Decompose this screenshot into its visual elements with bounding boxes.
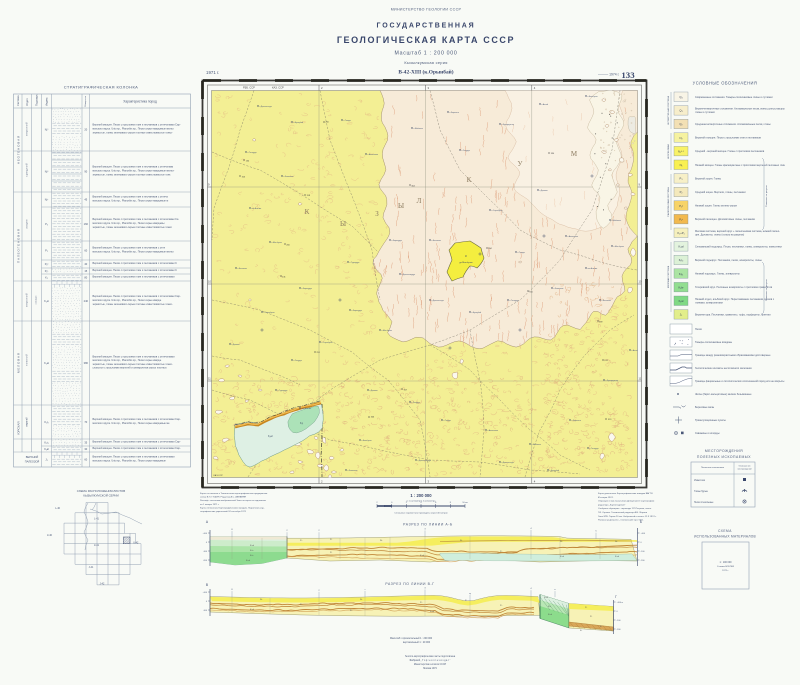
svg-text:Зона 8/95. Тираж 20 экз. Набра: Зона 8/95. Тираж 20 экз. Набранный в печ… <box>598 515 657 518</box>
svg-text:к.Таскудук: к.Таскудук <box>590 448 599 450</box>
svg-text:К: К <box>467 176 472 184</box>
svg-text:Характеристика пород: Характеристика пород <box>123 100 157 104</box>
svg-text:вертикальный 1 : 20 000: вертикальный 1 : 20 000 <box>403 641 431 644</box>
svg-text:K₁al: K₁al <box>679 299 684 303</box>
svg-text:K₁al: K₁al <box>44 447 49 451</box>
svg-text:кол.Агитма: кол.Агитма <box>588 267 599 270</box>
svg-text:K₂al: K₂al <box>544 597 549 599</box>
svg-text:Q₄: Q₄ <box>679 95 682 99</box>
svg-text:матского яруса. Unio sp., Plan: матского яруса. Unio sp., Planorbis sp.,… <box>93 299 162 302</box>
svg-text:М: М <box>571 150 578 158</box>
svg-text:щ: щ <box>469 593 471 595</box>
svg-text:Верхний миоцен. Пески с просло: Верхний миоцен. Пески с прослоями глин и… <box>93 269 178 272</box>
svg-text:к.Джангельды: к.Джангельды <box>432 300 445 302</box>
svg-text:Фабрикой „ Г о р г е о л т е: Фабрикой „ Г о р г е о л т е х и з д а т… <box>410 659 451 662</box>
svg-text:P₁²: P₁² <box>679 204 683 208</box>
svg-text:Средний эоцен. Мергели, глины,: Средний эоцен. Мергели, глины, песчаники <box>695 191 746 194</box>
svg-text:K₂: K₂ <box>600 626 602 628</box>
svg-text:цен. Доломиты, глины (только н: цен. Доломиты, глины (только на разрезе) <box>695 233 744 236</box>
svg-text:к.Турткудук: к.Турткудук <box>278 390 288 392</box>
svg-text:Такыры-солончаковые впадины: Такыры-солончаковые впадины <box>695 341 732 344</box>
svg-text:——— 1974 г.: ——— 1974 г. <box>598 73 620 77</box>
svg-text:P₂: P₂ <box>680 190 683 194</box>
svg-text:к.Балыклы: к.Балыклы <box>602 300 612 302</box>
svg-text:верхний: верхний <box>26 417 29 427</box>
svg-text:к.Учкудук: к.Учкудук <box>462 150 470 152</box>
svg-text:J₃: J₃ <box>680 313 682 317</box>
svg-text:Верхний миоцен. Пески с просло: Верхний миоцен. Пески с прослоями глин и… <box>93 276 176 279</box>
svg-text:K₂+P₁: K₂+P₁ <box>677 231 684 235</box>
svg-text:на 1 января 1971 г.: на 1 января 1971 г. <box>200 504 220 506</box>
svg-text:N₁²⁻³: N₁²⁻³ <box>678 149 684 153</box>
svg-text:Геологические контакты несогла: Геологические контакты несогласного зале… <box>695 367 752 370</box>
svg-text:K₂: K₂ <box>350 610 352 612</box>
svg-text:зернистые, глины зеленовато-се: зернистые, глины зеленовато-серые плотны… <box>93 131 173 134</box>
svg-text:К: К <box>305 208 310 216</box>
svg-text:матского яруса. Unio sp., Plan: матского яруса. Unio sp., Planorbis sp.,… <box>93 359 162 362</box>
svg-text:Карта допечатана Картографичес: Карта допечатана Картографическим заводо… <box>598 492 653 495</box>
svg-text:Жилы (барит-кальцитовые) мелки: Жилы (барит-кальцитовые) мелкие безымянн… <box>695 393 752 396</box>
svg-text:P₁: P₁ <box>330 539 332 541</box>
svg-text:Юстиции 1974.: Юстиции 1974. <box>598 497 614 499</box>
svg-text:К-40: К-40 <box>47 534 53 537</box>
svg-text:к.Джангельды: к.Джангельды <box>260 106 273 108</box>
svg-text:N₁: N₁ <box>380 540 383 542</box>
svg-text:Верхний миоцен. Пески с просло: Верхний миоцен. Пески с прослоями глин и… <box>93 355 176 358</box>
svg-text:сеноман: сеноман <box>36 295 38 304</box>
svg-text:Готеривский ярус. Песчаные але: Готеривский ярус. Песчаные алевролиты с … <box>695 286 773 289</box>
svg-text:L-40: L-40 <box>55 507 60 510</box>
svg-text:Ы: Ы <box>398 202 404 210</box>
svg-text:КАЗ.ССР: КАЗ.ССР <box>214 474 224 477</box>
svg-text:ПАЛЕОГЕНОВАЯ СИСТЕМА: ПАЛЕОГЕНОВАЯ СИСТЕМА <box>667 187 670 217</box>
svg-text:к.Учкудук: к.Учкудук <box>294 360 302 362</box>
svg-text:к.Тамды: к.Тамды <box>344 120 352 122</box>
svg-text:P₁¹: P₁¹ <box>45 269 49 273</box>
svg-text:кол.Агитма: кол.Агитма <box>252 207 263 210</box>
svg-text:240: 240 <box>84 299 89 303</box>
svg-text:зернистые, глины зеленовато-се: зернистые, глины зеленовато-серые плотны… <box>93 363 173 366</box>
svg-text:K₂al: K₂al <box>430 611 435 613</box>
svg-text:месторождений: месторождений <box>738 468 752 471</box>
svg-text:ур.Мынбулак: ур.Мынбулак <box>459 262 472 264</box>
svg-text:РЗБ. ССР: РЗБ. ССР <box>243 86 255 90</box>
svg-text:N₁²: N₁² <box>45 170 49 174</box>
svg-text:к.Шейхали: к.Шейхали <box>612 219 621 222</box>
svg-text:к.Тамды: к.Тамды <box>444 420 452 422</box>
svg-text:к.Таскудук: к.Таскудук <box>248 152 257 154</box>
svg-text:N₂: N₂ <box>680 136 683 140</box>
svg-text:Г: Г <box>615 595 617 599</box>
svg-text:к.Караката: к.Караката <box>450 112 460 114</box>
svg-text:НЕОГЕНОВАЯ: НЕОГЕНОВАЯ <box>667 144 670 160</box>
svg-text:K₁t₁: K₁t₁ <box>679 272 683 276</box>
svg-text:к.Аксай: к.Аксай <box>542 103 549 106</box>
svg-text:к.Бешбулак: к.Бешбулак <box>362 440 372 442</box>
svg-text:J-41: J-41 <box>89 566 94 569</box>
svg-text:K₂al: K₂al <box>560 556 565 558</box>
svg-text:Нижний подъярус. Глины, алевро: Нижний подъярус. Глины, алевролиты <box>695 273 740 276</box>
svg-text:П А Л Е О Г Е Н О В А Я: П А Л Е О Г Е Н О В А Я <box>17 229 21 263</box>
svg-text:ПОЛЕЗНЫХ ИСКОПАЕМЫХ: ПОЛЕЗНЫХ ИСКОПАЕМЫХ <box>697 455 751 459</box>
svg-text:Верхний миоцен. Пески с просло: Верхний миоцен. Пески с прослоями глин и… <box>93 247 166 250</box>
svg-text:т: т <box>364 589 365 591</box>
svg-text:к.Джангызкудук: к.Джангызкудук <box>418 460 432 462</box>
svg-text:K₁t: K₁t <box>300 422 303 425</box>
svg-text:ЮРСКАЯ: ЮРСКАЯ <box>17 421 21 434</box>
svg-text:P₁: P₁ <box>590 616 592 618</box>
svg-text:P₁: P₁ <box>330 552 332 554</box>
svg-text:Рабочая разрешено - технически: Рабочая разрешено - технический торг. 50… <box>598 519 644 522</box>
svg-text:P₂: P₂ <box>500 605 502 607</box>
svg-text:матского яруса. Unio sp., Plan: матского яруса. Unio sp., Planorbis sp.,… <box>93 422 171 425</box>
svg-text:K₁t₂: K₁t₂ <box>250 549 254 552</box>
svg-text:N₁³: N₁³ <box>45 128 49 132</box>
svg-text:Скважины и колодцы: Скважины и колодцы <box>695 432 720 435</box>
svg-text:Рельеф с высотами изображенный: Рельеф с высотами изображенный Зоны на к… <box>200 499 267 502</box>
svg-text:Ы: Ы <box>340 220 346 228</box>
svg-text:к.Джангызкудук: к.Джангызкудук <box>402 274 416 276</box>
svg-text:Карта составлена в Ташкентском: Карта составлена в Ташкентском картограф… <box>200 492 268 495</box>
svg-text:к.Шейхали: к.Шейхали <box>414 127 423 130</box>
svg-text:L-41: L-41 <box>94 518 99 521</box>
svg-text:МИНИСТЕРСТВО ГЕОЛОГИИ СССР: МИНИСТЕРСТВО ГЕОЛОГИИ СССР <box>391 8 462 12</box>
svg-text:к.Кызылкак: к.Кызылкак <box>348 470 358 472</box>
svg-text:K₁br: K₁br <box>678 285 683 289</box>
svg-text:Береговые валы: Береговые валы <box>695 406 714 409</box>
svg-text:глинами, алевролитами: глинами, алевролитами <box>695 301 723 304</box>
svg-text:N₁: N₁ <box>360 599 363 601</box>
svg-text:Полезные ископаемые: Полезные ископаемые <box>701 467 725 469</box>
svg-text:P₃: P₃ <box>45 222 48 226</box>
svg-text:Геолого-картографическая часть: Геолого-картографическая часть подготовл… <box>405 655 456 658</box>
svg-text:Верхний миоцен. Пески с просло: Верхний миоцен. Пески с прослоями глин и… <box>93 166 174 169</box>
svg-text:Верхний плиоцен. Пески с просл: Верхний плиоцен. Пески с прослоями глин … <box>695 137 762 140</box>
svg-text:к.Кульджуктау: к.Кульджуктау <box>606 380 619 382</box>
svg-text:K₂al: K₂al <box>250 545 255 547</box>
svg-text:МЕСТОРОЖДЕНИЯ: МЕСТОРОЖДЕНИЯ <box>705 449 743 453</box>
svg-text:K₂al: K₂al <box>250 609 255 611</box>
svg-text:Верхний миоцен. Пески с просло: Верхний миоцен. Пески с прослоями глин и… <box>93 218 180 221</box>
svg-text:K₁al: K₁al <box>548 614 552 616</box>
svg-text:Верхний подъярус. Песчаники, п: Верхний подъярус. Песчаники, пески, алев… <box>695 259 762 262</box>
svg-text:Верхний эоцен. Глины: Верхний эоцен. Глины <box>695 177 721 180</box>
svg-text:У: У <box>518 160 523 168</box>
svg-text:K₁t₂: K₁t₂ <box>44 420 48 424</box>
svg-text:к.Каракудук: к.Каракудук <box>302 288 312 290</box>
svg-text:+100 м: +100 м <box>617 602 624 604</box>
svg-text:слоистые с прослоями мергелей: слоистые с прослоями мергелей и алевроли… <box>93 367 168 370</box>
svg-text:к.Бузаубай: к.Бузаубай <box>550 469 560 472</box>
svg-text:K₂: K₂ <box>45 276 48 280</box>
svg-text:КАЗ. ССР: КАЗ. ССР <box>272 86 284 90</box>
svg-text:матского яруса. Unio sp., Plan: матского яруса. Unio sp., Planorbis sp.,… <box>93 222 165 225</box>
svg-text:к.Караката: к.Караката <box>572 420 582 422</box>
svg-text:N₁: N₁ <box>260 599 263 601</box>
svg-text:к.Джангельды: к.Джангельды <box>502 462 515 464</box>
svg-text:к.Турткудук: к.Турткудук <box>350 262 360 264</box>
svg-text:к.Мынбулак: к.Мынбулак <box>382 330 392 332</box>
svg-text:P₂: P₂ <box>45 249 48 253</box>
svg-text:КЫЗЫЛКУМСКОЙ СЕРИИ: КЫЗЫЛКУМСКОЙ СЕРИИ <box>83 494 118 498</box>
svg-text:к.Мынбулак: к.Мынбулак <box>272 242 282 244</box>
svg-text:Границы между разновозрастными: Границы между разновозрастными образован… <box>695 354 771 357</box>
svg-text:Q₂: Q₂ <box>679 122 682 126</box>
svg-text:Сплошные горизонтали проведены: Сплошные горизонтали проведены через 40 … <box>394 513 448 515</box>
svg-text:K₂al: K₂al <box>615 556 620 558</box>
svg-text:зернистые, глины зеленовато-се: зернистые, глины зеленовато-серые плотны… <box>93 226 173 229</box>
svg-text:с: с <box>465 254 467 258</box>
svg-text:Сеноманский подъярус. Пески, п: Сеноманский подъярус. Пески, песчаники, … <box>695 245 782 248</box>
svg-text:K₂al: K₂al <box>268 435 273 438</box>
svg-text:к.Аякагитма: к.Аякагитма <box>368 153 379 156</box>
svg-text:к.Сарыбулак: к.Сарыбулак <box>492 210 503 212</box>
svg-text:РАЗРЕЗ ПО ЛИНИИ В-Г: РАЗРЕЗ ПО ЛИНИИ В-Г <box>385 582 434 586</box>
svg-text:к.Каракудук: к.Каракудук <box>352 310 362 312</box>
svg-text:N₁¹: N₁¹ <box>45 198 49 202</box>
svg-text:к.Тамды: к.Тамды <box>518 252 526 254</box>
svg-text:P₁¹: P₁¹ <box>679 217 683 221</box>
svg-text:к.Аякагитма: к.Аякагитма <box>568 235 579 238</box>
svg-text:Показаны на разрезе: Показаны на разрезе <box>766 184 768 206</box>
svg-text:Подъярус: Подъярус <box>35 94 39 106</box>
svg-text:ГЕОЛОГИЧЕСКАЯ КАРТА СССР: ГЕОЛОГИЧЕСКАЯ КАРТА СССР <box>337 35 515 45</box>
svg-text:K₁t₁: K₁t₁ <box>250 554 254 557</box>
svg-text:Отдел: Отдел <box>25 98 29 106</box>
svg-text:ЧЕТВЕРТИЧНАЯ СИСТЕМА: ЧЕТВЕРТИЧНАЯ СИСТЕМА <box>667 96 670 125</box>
svg-text:к.Сарыбулак: к.Сарыбулак <box>322 342 333 344</box>
svg-text:глины и суглинки: глины и суглинки <box>695 111 715 114</box>
svg-text:Средний - верхний миоцен. Глин: Средний - верхний миоцен. Глины с просло… <box>695 150 765 153</box>
svg-text:Мощность: Мощность <box>85 95 87 106</box>
svg-text:в е р х н и й: в е р х н и й <box>26 122 29 136</box>
svg-text:к.Кызылкак: к.Кызылкак <box>554 288 564 290</box>
svg-text:к.Балыклы: к.Балыклы <box>432 240 442 242</box>
svg-text:Отобрано образцово - переходы: Отобрано образцово - переходы У.П.Петров… <box>598 508 652 510</box>
svg-text:Индекс: Индекс <box>45 97 49 106</box>
svg-text:Г.И. Орлова. Технический редак: Г.И. Орлова. Технический редактор А.В. Ж… <box>598 511 648 514</box>
svg-text:ИСПОЛЬЗОВАННЫХ МАТЕРИАЛОВ: ИСПОЛЬЗОВАННЫХ МАТЕРИАЛОВ <box>694 535 756 539</box>
svg-text:к.Джаман: к.Джаман <box>232 344 240 346</box>
svg-text:матского яруса. Unio sp., Plan: матского яруса. Unio sp., Planorbis sp.,… <box>93 128 175 131</box>
svg-text:Показаны на разрезе: Показаны на разрезе <box>766 278 768 300</box>
svg-text:СТРАТИГРАФИЧЕСКАЯ КОЛОНКА: СТРАТИГРАФИЧЕСКАЯ КОЛОНКА <box>64 85 139 90</box>
svg-text:Верхний миоцен. Пески с просло: Верхний миоцен. Пески с прослоями глин и… <box>93 456 176 459</box>
svg-text:Карта отпечатана Картографичес: Карта отпечатана Картографическим заводо… <box>200 506 265 509</box>
svg-text:N₁: N₁ <box>680 163 683 167</box>
svg-text:З: З <box>375 210 379 218</box>
svg-text:к.Бешбулак: к.Бешбулак <box>588 96 598 98</box>
svg-text:Б: Б <box>640 520 642 524</box>
svg-text:Обозначения: Обозначения <box>739 466 751 468</box>
svg-text:1971 г.: 1971 г. <box>722 570 729 572</box>
svg-text:K₂al: K₂al <box>44 361 49 365</box>
svg-text:матского яруса. Unio sp., Plan: матского яруса. Unio sp., Planorbis sp.,… <box>93 170 175 173</box>
svg-text:1 : 200 000: 1 : 200 000 <box>410 493 432 498</box>
svg-text:10 км: 10 км <box>462 502 468 504</box>
svg-text:с р е д н и й: с р е д н и й <box>26 163 29 177</box>
svg-text:Q₃: Q₃ <box>679 109 682 113</box>
svg-text:133: 133 <box>621 70 635 80</box>
svg-text:Л: Л <box>417 197 422 205</box>
svg-text:J-42: J-42 <box>100 583 105 586</box>
svg-text:кол.Агитма: кол.Агитма <box>302 407 313 410</box>
svg-text:N₁: N₁ <box>460 540 463 542</box>
svg-text:Верхний миоцен. Пески с просло: Верхний миоцен. Пески с прослоями глин и… <box>93 124 181 127</box>
svg-text:Пески стекольные: Пески стекольные <box>694 502 714 504</box>
svg-text:N₂: N₂ <box>560 541 563 543</box>
svg-text:зернистые, глины зеленовато-се: зернистые, глины зеленовато-серые плотны… <box>93 173 172 176</box>
svg-text:Нижний миоцен. Глины красноцве: Нижний миоцен. Глины красноцветные с про… <box>695 164 786 167</box>
svg-text:схема В.П. ГУШИН. Редактор: схема В.П. ГУШИН. Редактор А.С. АБРАМЯН <box>200 496 246 499</box>
svg-text:P₁: P₁ <box>465 600 467 602</box>
svg-text:160: 160 <box>84 222 89 226</box>
svg-text:В: В <box>206 583 208 587</box>
svg-text:P₂: P₂ <box>420 602 422 604</box>
svg-text:К-42: К-42 <box>134 542 140 545</box>
svg-text:K₂al: K₂al <box>679 245 684 249</box>
svg-text:K₂al: K₂al <box>420 555 425 557</box>
svg-text:МЕЛОВАЯ СИСТЕМА: МЕЛОВАЯ СИСТЕМА <box>667 265 670 288</box>
svg-text:Министерства геологии СССР: Министерства геологии СССР <box>414 664 447 666</box>
svg-text:K₁al: K₁al <box>246 560 250 562</box>
svg-text:к.Каракудук: к.Каракудук <box>392 240 402 242</box>
svg-text:к.Аякагитма: к.Аякагитма <box>488 429 499 432</box>
svg-text:ПАЛЕОЗОЙ: ПАЛЕОЗОЙ <box>25 460 40 464</box>
svg-text:Верхний миоцен. Пески с просло: Верхний миоцен. Пески с прослоями глин и… <box>93 447 181 450</box>
svg-text:тографических укреплений 24 с: тографических укреплений 24 сентября 197… <box>200 510 247 513</box>
svg-text:УСЛОВНЫЕ ОБОЗНАЧЕНИЯ: УСЛОВНЫЕ ОБОЗНАЧЕНИЯ <box>693 81 758 86</box>
svg-text:Триангуляционные пункты: Триангуляционные пункты <box>695 419 726 422</box>
svg-text:к.Учкудук: к.Учкудук <box>412 402 420 404</box>
svg-text:1971 г.: 1971 г. <box>206 70 219 75</box>
svg-text:1 : 100 000: 1 : 100 000 <box>720 561 733 564</box>
svg-text:Границы фациальные и литологич: Границы фациальные и литологических соот… <box>695 380 785 383</box>
svg-text:Верхний миоцен. Пески с просло: Верхний миоцен. Пески с прослоями глин и… <box>93 295 181 298</box>
svg-text:K₂st: K₂st <box>44 299 49 303</box>
svg-text:н и ж н и й: н и ж н и й <box>26 354 29 366</box>
svg-text:к.Кульджуктау: к.Кульджуктау <box>502 124 515 126</box>
svg-text:К-41: К-41 <box>94 544 100 547</box>
svg-text:матского яруса. Unio sp., Plan: матского яруса. Unio sp., Planorbis sp.,… <box>93 459 167 462</box>
svg-text:Кызылкумская серия: Кызылкумская серия <box>404 60 447 65</box>
svg-text:э о ц е н: э о ц е н <box>26 219 29 229</box>
svg-text:Известняк: Известняк <box>694 480 706 482</box>
svg-text:к.Аксай: к.Аксай <box>632 349 639 352</box>
svg-text:к.Балыклы: к.Балыклы <box>238 268 248 270</box>
svg-text:РАЗРЕЗ ПО ЛИНИИ А-Б: РАЗРЕЗ ПО ЛИНИИ А-Б <box>403 523 453 527</box>
svg-text:Москва 1974: Москва 1974 <box>423 668 437 670</box>
svg-text:ГОСУДАРСТВЕННАЯ: ГОСУДАРСТВЕННАЯ <box>377 23 476 30</box>
svg-text:Верхняя юра. Песчаники, гравел: Верхняя юра. Песчаники, гравелиты, туфы,… <box>695 313 771 316</box>
svg-text:матского яруса. Unio sp., Plan: матского яруса. Unio sp., Planorbis sp.,… <box>93 250 175 253</box>
svg-text:K₁: K₁ <box>580 630 582 632</box>
svg-text:СХЕМА РАСПОЛОЖЕНИЯ ЛИСТОВ: СХЕМА РАСПОЛОЖЕНИЯ ЛИСТОВ <box>77 489 125 493</box>
svg-text:Современные отложения. Такыры-: Современные отложения. Такыры-солончаков… <box>695 96 773 99</box>
svg-text:к.Бузаубай: к.Бузаубай <box>472 311 482 314</box>
svg-text:K₁t₁: K₁t₁ <box>44 441 48 445</box>
svg-text:СХЕМА: СХЕМА <box>718 529 732 533</box>
svg-text:Верхний миоцен. Пески с просло: Верхний миоцен. Пески с прослоями глин и… <box>93 196 169 199</box>
svg-text:Нижний эоцен. Глины зелено-сер: Нижний эоцен. Глины зелено-серые <box>695 205 738 208</box>
svg-text:к.Джаман: к.Джаман <box>540 190 548 192</box>
svg-text:М Е Л О В А Я: М Е Л О В А Я <box>17 353 21 373</box>
svg-text:Пески: Пески <box>695 328 703 331</box>
svg-text:Верхний миоцен. Пески с просло: Верхний миоцен. Пески с прослоями глин и… <box>93 441 181 444</box>
svg-text:к.Мынбулак: к.Мынбулак <box>614 246 624 248</box>
svg-text:Глины бурые: Глины бурые <box>694 491 709 493</box>
svg-text:к.Кызылкак: к.Кызылкак <box>284 176 294 178</box>
svg-text:к.Таскудук: к.Таскудук <box>510 300 519 302</box>
svg-text:Н Е О Г Е Н О В А Я: Н Е О Г Е Н О В А Я <box>17 136 21 164</box>
svg-text:Образцов и зам.начальника Деп: Образцов и зам.начальника Департамент ка… <box>598 500 655 503</box>
svg-text:Средненечетвертичные отложения: Средненечетвертичные отложения. Аллювиал… <box>695 123 771 126</box>
svg-text:Верхний палеоцен. Доломитовые: Верхний палеоцен. Доломитовые глины, пес… <box>695 218 756 221</box>
svg-text:P₁²: P₁² <box>45 262 49 266</box>
svg-text:Система: Система <box>16 95 20 106</box>
svg-text:матского яруса. Unio sp., Plan: матского яруса. Unio sp., Planorbis sp.,… <box>93 199 169 202</box>
svg-text:Верхний миоцен. Пески с просло: Верхний миоцен. Пески с прослоями глин и… <box>93 262 178 265</box>
svg-text:к.Шейхали: к.Шейхали <box>532 443 541 446</box>
svg-text:380: 380 <box>84 361 89 365</box>
svg-text:редактора „Картогеодезия“: редактора „Картогеодезия“ <box>598 504 626 506</box>
svg-text:P₂: P₂ <box>300 540 302 542</box>
svg-text:N₁: N₁ <box>615 541 618 543</box>
svg-text:к.Бузаубай: к.Бузаубай <box>294 121 304 124</box>
svg-text:к.Джаман: к.Джаман <box>370 390 378 392</box>
svg-text:к.Сарыбулак: к.Сарыбулак <box>264 312 275 314</box>
svg-text:в е р х н и й: в е р х н и й <box>26 293 29 307</box>
svg-text:P₂: P₂ <box>300 604 302 606</box>
svg-text:ВЕРХНИЙ: ВЕРХНИЙ <box>26 455 39 459</box>
svg-text:P₂: P₂ <box>500 551 502 553</box>
svg-text:P₁: P₁ <box>585 607 587 609</box>
svg-text:Масштаб: горизонтальный 1 : 2: Масштаб: горизонтальный 1 : 200 000 <box>390 637 433 640</box>
svg-text:P₃: P₃ <box>680 177 683 181</box>
svg-text:K₁t₂: K₁t₂ <box>679 258 684 262</box>
svg-text:K₁t: K₁t <box>548 605 551 608</box>
svg-text:В-42-ХIII (к.Орынбай): В-42-ХIII (к.Орынбай) <box>398 69 453 76</box>
svg-text:Съемка ВСЕГЕИ: Съемка ВСЕГЕИ <box>717 566 735 568</box>
svg-text:зернистые, глины зеленовато-се: зернистые, глины зеленовато-серые плотны… <box>93 303 173 306</box>
svg-text:Верхний миоцен. Пески с просло: Верхний миоцен. Пески с прослоями глин и… <box>93 418 181 421</box>
svg-text:J₃: J₃ <box>45 458 47 462</box>
svg-text:Масштаб 1 : 200 000: Масштаб 1 : 200 000 <box>395 51 458 57</box>
